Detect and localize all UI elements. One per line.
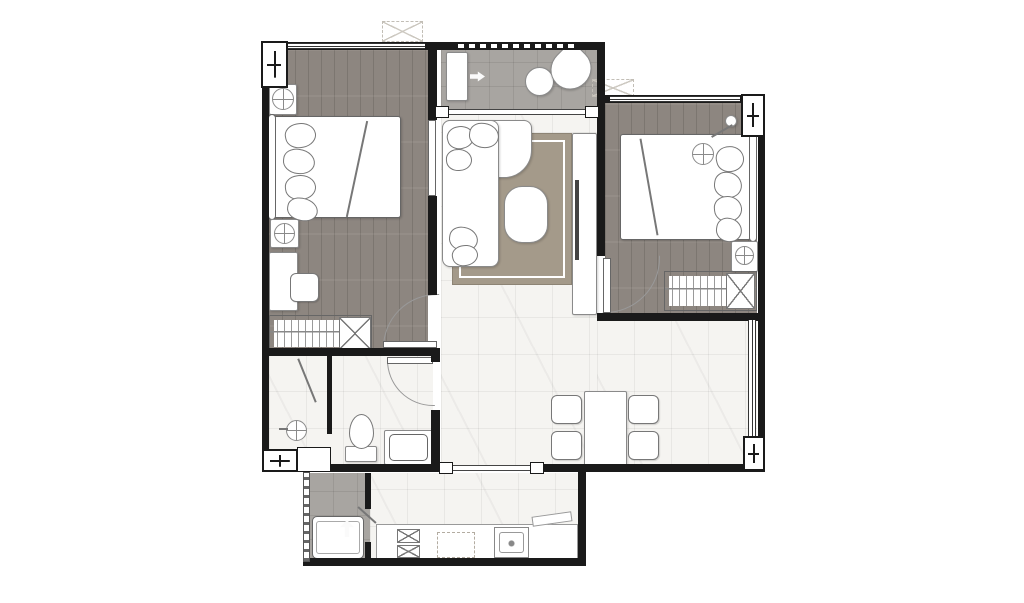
stove-burner <box>397 545 420 558</box>
wall-bathroom-top <box>262 348 440 356</box>
wall-bedroom-1-right-b <box>428 196 437 295</box>
dining-chair <box>628 431 659 460</box>
shower-head-symbol <box>286 420 307 441</box>
kitchen-slide-track <box>453 465 530 471</box>
ac-unit-dashed <box>382 21 423 42</box>
bedroom-1-lamp-symbol-2 <box>274 223 295 244</box>
appliance-space-dashed <box>437 532 475 558</box>
bedroom-1-pocket-door <box>428 120 436 196</box>
bedroom-1-wardrobe-x <box>339 317 371 350</box>
toilet-bowl <box>349 414 374 449</box>
washing-machine <box>312 516 364 559</box>
window-dining <box>748 320 756 438</box>
wall-left <box>262 42 269 472</box>
tv-screen <box>575 180 579 260</box>
door-frame <box>585 106 599 118</box>
wall-entry-right <box>597 42 605 103</box>
column-bottom-left <box>262 449 298 472</box>
wall-dining-bottom <box>597 464 765 472</box>
wall-bedroom-2-bottom <box>597 313 758 321</box>
column-top-left <box>261 41 288 88</box>
bedroom-1-lamp-symbol <box>272 88 294 110</box>
bedroom-1-headboard <box>268 114 276 220</box>
vanity-basin <box>389 434 428 461</box>
door-frame <box>435 106 449 118</box>
bedroom-1-desk-chair <box>290 273 319 302</box>
bedroom-1-door-panel <box>383 341 437 348</box>
utility-shaft <box>297 447 331 472</box>
bedroom-2-pendant-lamp <box>692 143 714 165</box>
column-top-right <box>741 94 765 137</box>
door-frame <box>530 462 544 474</box>
shower-partition <box>327 356 332 434</box>
shower-arm <box>279 428 288 430</box>
dining-chair <box>628 395 659 424</box>
balcony-railing <box>303 472 310 562</box>
window-bedroom-2 <box>610 96 740 102</box>
stove-burner <box>397 529 420 543</box>
wall-bedroom-2-left <box>597 103 605 256</box>
wall-bathroom-right-a <box>431 348 440 362</box>
balcony-divider <box>365 473 371 509</box>
entry-slide-track <box>449 109 585 115</box>
bedroom-2-lamp-symbol <box>735 246 754 265</box>
bedroom-2-door-panel <box>603 258 611 313</box>
dining-table <box>584 391 627 467</box>
kitchen-sink <box>494 527 529 558</box>
window-bedroom-1 <box>287 43 425 49</box>
shoe-cabinet <box>446 52 468 101</box>
dining-chair <box>551 431 582 460</box>
coffee-table <box>504 186 548 243</box>
wall-living-bottom-right <box>543 464 598 472</box>
column-bottom-right <box>743 436 765 471</box>
bedroom-2-wardrobe-x <box>726 273 755 309</box>
bathroom-door-panel <box>387 357 433 364</box>
wall-kitchen-bottom <box>303 558 586 566</box>
wall-kitchen-right <box>578 464 586 566</box>
bedroom-2-headboard <box>749 132 757 242</box>
floor-plan <box>0 0 1024 603</box>
entry-vent-strip <box>452 43 578 49</box>
dining-chair <box>551 395 582 424</box>
door-frame <box>439 462 453 474</box>
